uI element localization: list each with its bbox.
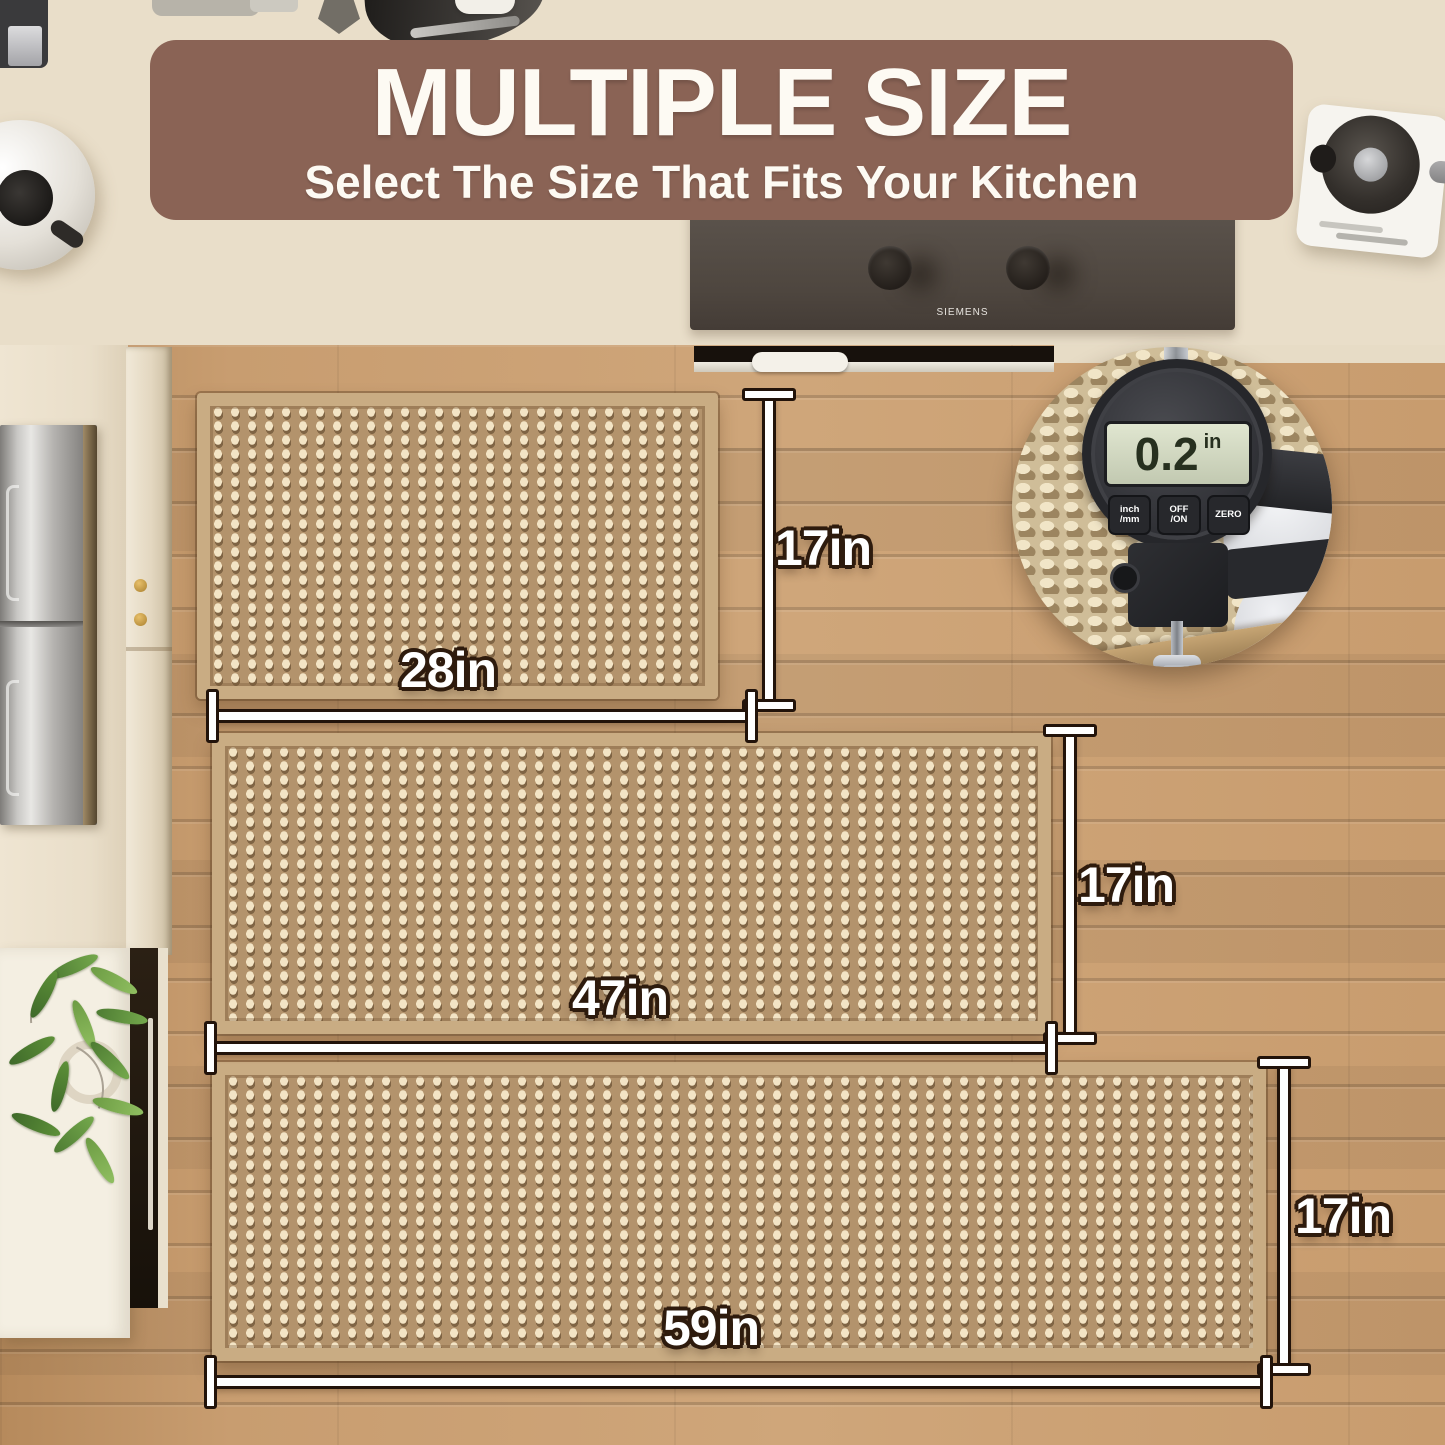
coffee-kettle xyxy=(0,120,95,270)
cabinet-column xyxy=(126,347,172,955)
cooktop-knob xyxy=(1006,246,1050,290)
cup xyxy=(455,0,515,14)
pot-vent xyxy=(1319,221,1383,234)
banner-title: MULTIPLE SIZE xyxy=(372,55,1072,151)
fridge-handle xyxy=(6,680,19,796)
drawer-rail xyxy=(694,362,1054,372)
gauge-reading: 0.2 xyxy=(1135,431,1199,477)
fridge-handle xyxy=(6,485,19,601)
label-width-small: 28in xyxy=(400,645,496,695)
title-banner: MULTIPLE SIZE Select The Size That Fits … xyxy=(150,40,1293,220)
gauge-buttons: inch /mm OFF /ON ZERO xyxy=(1108,495,1250,535)
gauge-foot-knob xyxy=(1163,665,1191,667)
fridge xyxy=(0,425,97,825)
dimension-line-height-large xyxy=(1277,1062,1291,1370)
dimension-line-width-large xyxy=(210,1375,1267,1389)
gauge-button-inch-mm: inch /mm xyxy=(1108,495,1151,535)
coffee-kettle-handle xyxy=(48,217,87,251)
gauge-clamp-body xyxy=(1128,543,1228,627)
banner-subtitle: Select The Size That Fits Your Kitchen xyxy=(304,159,1138,205)
dimension-line-width-medium xyxy=(210,1041,1052,1055)
grater xyxy=(250,0,298,12)
cabinet-knob xyxy=(134,579,147,592)
label-width-medium: 47in xyxy=(572,973,668,1023)
fridge-frame xyxy=(83,425,97,825)
label-width-large: 59in xyxy=(663,1303,759,1353)
cabinet-door-split xyxy=(126,647,172,651)
cooktop-knob xyxy=(868,246,912,290)
spatula xyxy=(318,0,360,34)
dimension-line-height-medium xyxy=(1063,730,1077,1039)
pot-handle xyxy=(1428,160,1445,186)
gauge-display: 0.2 in xyxy=(1104,421,1252,487)
dimension-line-height-small xyxy=(762,394,776,706)
pot-vent xyxy=(1336,232,1408,245)
coffee-kettle-lid xyxy=(0,170,53,226)
label-height-small: 17in xyxy=(775,523,871,573)
espresso-machine-panel xyxy=(8,26,42,66)
potted-plant xyxy=(0,952,160,1202)
thickness-inset-circle: 0.2 in inch /mm OFF /ON ZERO xyxy=(1012,347,1332,667)
gauge-screw xyxy=(1110,563,1140,593)
plant-leaf xyxy=(91,1094,145,1119)
gauge-button-zero: ZERO xyxy=(1207,495,1250,535)
label-height-medium: 17in xyxy=(1078,860,1174,910)
fridge-door-divider xyxy=(0,621,83,627)
gauge-button-off-on: OFF /ON xyxy=(1157,495,1200,535)
plant-leaf xyxy=(81,1135,118,1187)
cabinet-knob xyxy=(134,613,147,626)
kitchen-scene: SIEMENS MULTIPLE SIZE Select The Size Th… xyxy=(0,0,1445,1445)
drawer-handle xyxy=(752,352,848,372)
gauge-unit: in xyxy=(1204,432,1222,452)
espresso-machine xyxy=(0,0,48,68)
utensil-tray xyxy=(152,0,260,16)
label-height-large: 17in xyxy=(1295,1191,1391,1241)
electric-pot xyxy=(1295,103,1445,259)
dimension-line-width-small xyxy=(212,709,752,723)
cooktop-brand: SIEMENS xyxy=(690,307,1235,318)
